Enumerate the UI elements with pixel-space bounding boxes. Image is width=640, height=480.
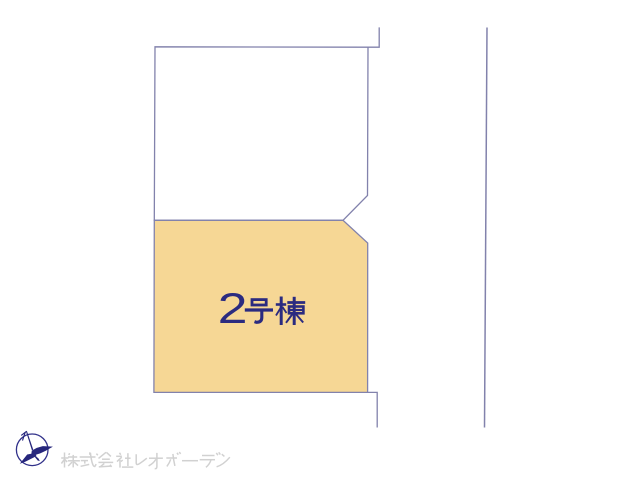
svg-text:2: 2 <box>218 285 248 332</box>
